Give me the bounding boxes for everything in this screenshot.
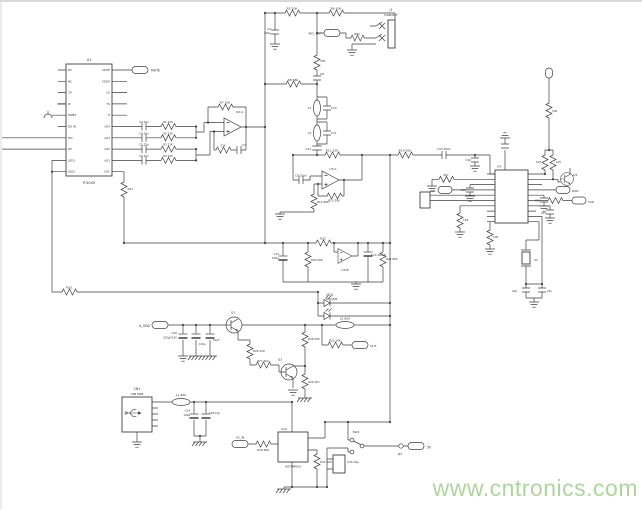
u1-pin-label: DM [68,136,73,140]
label-r4: R4 22K [163,154,173,158]
label-r28: R28 560 [308,337,320,341]
inductor-l4 [314,125,321,141]
usb-reg-section: CN1 USB MINI L1 600 C24 100μ C28 10μ 5V_… [122,387,432,493]
ground-icon [132,442,142,447]
label-r15: 22K [220,144,226,148]
label-r26: R26 220 [253,349,265,353]
capacitor-c11 [323,131,331,135]
resistor-r17 [542,153,548,172]
label-u12-part: LM78M05A [285,465,302,469]
label-c9: C9 100n [295,174,307,178]
resistor-r11 [323,152,342,158]
inductor-l1 [172,399,190,406]
schematic-canvas: U1 P-5049 MUTE R33 R21 PD NC CP IP HWBT … [0,0,642,509]
label-c14: C14 [305,147,311,151]
ground-icon [275,214,285,219]
label-r8: R8 680 [288,78,299,82]
u1-pin-label: NC [68,79,72,83]
label-c19: C19 [535,199,540,203]
u1-pin-label: DP [68,147,72,151]
u1-pin-label: LED1 [68,158,75,162]
top-section: C2 100μ R5 10K R6 10K 330 C8 R8 680 MIC_… [264,7,398,244]
capacitor-c16 [471,158,479,162]
label-q1: Q1 [231,311,235,315]
power-section: A_VDD L2 600 C25 220μF/16V 100μ 10μF Q1 … [139,311,390,403]
u1-pin-label: LED2 [68,170,75,174]
transistor-q1 [226,317,242,333]
net-flag-5v-in [232,441,248,448]
label-c28: C28 10μ [209,411,220,415]
switch-contact-1 [350,438,354,442]
label-r22: R22 [320,237,326,241]
u1-pin-label: HWBT [68,113,77,117]
label-r1: R1 22K [163,120,173,124]
label-u2a: U2:A [236,110,244,114]
u1-part: P-5049 [83,181,95,185]
label-c11: C11 [331,131,337,135]
label-r18: 1K5 [556,160,561,164]
label-c22: 22p [547,289,552,293]
transistor-q2 [281,364,297,380]
ground-icon [539,206,549,211]
label-u3a: U3:A [329,167,337,171]
ground-icon [455,232,465,237]
capacitor-c2 [271,30,279,34]
label-c24-val: 100μ [183,413,190,417]
capacitor-c15 [442,151,446,159]
ground-icon [545,218,555,223]
ground-icon [270,44,280,49]
label-r31: R31 560 [320,460,332,464]
u1-pin-label: AO1 [104,158,110,162]
u1-section: U1 P-5049 MUTE R33 R21 PD NC CP IP HWBT … [2,58,318,295]
capacitor-c20 [546,210,554,214]
capacitor-c21 [522,288,530,292]
ground-icon [288,390,298,395]
label-cn1: CN1 [134,387,141,391]
label-r29: R29 4K7 [308,380,320,384]
connector-cn1-body [122,397,152,432]
jumper-jp1 [399,444,403,448]
label-u4: U4 [497,165,501,169]
label-l4: L4 [308,131,312,135]
mic-component-body [420,192,430,208]
resistor-r2 [159,135,178,141]
net-flag-rxd [556,186,570,193]
led2-icon [324,309,332,320]
u3a-section: R11 10K R14 10K C15 100n C9 100n U3:A R1… [275,147,495,219]
label-c18: C18 [460,188,466,192]
inductor-l2 [336,322,354,329]
label-jp1: JP1 [397,452,403,456]
switch-contact-2 [360,444,364,448]
label-sw1: SW1 [353,430,360,434]
label-c15: C15 100n [437,147,451,151]
label-5v: 5V [427,446,432,450]
label-c5: C5 22n [139,143,149,147]
u1-pin-label: IP [68,102,71,106]
label-a-vdd: A_VDD [139,324,150,328]
schematic-page: U1 P-5049 MUTE R33 R21 PD NC CP IP HWBT … [0,0,642,509]
ground-icon [500,133,510,138]
opamp-u3b [338,249,352,264]
resistor-r1 [159,124,178,130]
label-c6: C6 22n [139,154,149,158]
resistor-r21 [121,180,127,199]
label-5v-in: 5V_IN [236,436,245,440]
label-c2-val: 100μ [264,31,271,35]
ground-icon [276,489,291,493]
resistor-r4 [159,157,178,163]
label-out: OUT [370,344,377,348]
transistor-q3 [561,173,574,186]
label-r24: R24 8K2 [386,257,398,261]
u1-pin-label: AO3 [104,136,110,140]
u1-pin-label: PD [68,68,72,72]
resistor-r5 [283,10,302,16]
ground-icon [178,356,188,361]
label-c30: C30 10μ [347,460,359,464]
resistor-r30 [254,441,273,447]
capacitor-c7 [237,146,241,154]
label-u12: U12 [281,427,287,431]
net-flag-5v [408,443,424,450]
capacitor-c24 [190,414,199,418]
label-c25: C25 [171,331,177,335]
watermark-text: www.cntronics.com [432,475,638,501]
u1-pin-label: CP [68,91,72,95]
label-r7: R7 10K [220,101,232,105]
label-r3: R3 22K [163,143,173,147]
net-flag-mute [132,67,148,74]
net-flag-vol [438,186,452,193]
label-l2: L2 600 [340,317,350,321]
label-c7: C7 [242,143,246,147]
capacitor-c8 [313,76,321,80]
resistor-r33 [60,289,79,295]
net-flag-mic-out [324,30,340,37]
label-r11: R11 10K [326,149,340,153]
ground-icon [347,50,357,55]
label-l1: L1 600 [176,393,186,397]
u1-pin-label: OSC [104,170,110,174]
u1-pin-label: TS [106,102,111,106]
label-c27-val: 10μF [213,338,220,342]
label-c10: C10 [331,106,337,110]
wires [137,402,408,489]
u1-pin-label: AO2 [104,147,110,151]
label-c25-val: 220μF/16V [163,336,177,340]
label-j1: J1 [389,8,393,12]
label-led-type: LED R/B [326,297,337,301]
ground-icon [470,166,480,171]
resistor-r19 [546,198,565,204]
u1-pin-label: MUTE [102,68,110,72]
resistor-r3 [159,146,178,152]
u1-pin-label: LD [106,91,110,95]
switch-lever [354,441,361,445]
label-r15b: 10K [552,109,558,113]
label-r2: R2 22K [163,131,173,135]
label-r9: 330 [320,59,326,63]
label-r14: R14 10K [399,149,413,153]
label-mute: MUTE [151,69,160,73]
switch-contact-3 [350,450,354,454]
capacitor-c22 [538,288,546,292]
u4-section: U4 4K7 C18 VOL 1K0 10K 1K5 1K5 10K Q3 RX… [420,68,595,307]
label-c12-val: 100μ [272,256,279,260]
label-r16: 4K7 [443,173,449,177]
label-l3: L3 [308,106,312,110]
label-r6: R6 10K [331,7,343,11]
u1-pin-label: VDDO [102,79,110,83]
label-rmic: 680 [354,32,360,36]
u1-ref: U1 [87,58,92,62]
label-c16: C16 [465,158,471,162]
ground-icon [297,398,312,402]
ground-icon [529,302,539,307]
u1-pin-label: TI [107,113,111,117]
label-q2: Q2 [278,358,282,362]
label-r33: R33 [66,286,72,290]
label-vol: VOL [430,189,436,193]
net-flag-a-vdd [152,322,168,329]
capacitor-c27 [206,334,215,338]
capacitor-c12 [279,256,288,260]
label-q3: Q3 [573,173,577,177]
opamp-u3a [322,171,339,189]
label-rl7: 1K0 [463,218,469,222]
label-rl10: 10K [493,235,499,239]
resistor-r16 [437,176,456,182]
label-r30: R30 480 [257,448,269,452]
regulator-u12-body [278,432,308,462]
label-r21: R21 [128,187,134,191]
label-j1-part: HANDSET [384,13,398,17]
resistor-r14 [396,152,415,158]
ground-icon [351,284,361,289]
label-r13: R13 20K [328,199,340,203]
label-r25: R25 10K [329,339,341,343]
resistor-r25 [326,342,345,348]
label-c8: C8 [320,72,324,76]
ground-icon [485,249,495,254]
label-c26-val: 100μ [199,342,206,346]
label-c21: 22p [512,289,517,293]
capacitor-c10 [323,106,331,110]
u4-ic-body [495,170,528,223]
capacitor-c19 [540,198,548,202]
label-r20: R20 20K [311,258,323,262]
label-txd: TXD [587,200,595,204]
label-rxd: RXD [572,189,579,193]
capacitor-c26 [192,334,201,338]
ground-icon [188,356,203,360]
label-c20: C20 [541,211,546,215]
wires [2,70,318,292]
capacitor-decouple [501,144,509,148]
ground-icon [202,356,217,360]
dac-opamp-section: C3 22n R1 22K C4 22n R2 22K C5 22n R3 22… [139,101,265,165]
resistor-r6 [327,10,346,16]
net-flag-txd [572,197,586,204]
label-cn1-part: USB MINI [131,392,144,396]
net-flag-out [352,342,368,349]
wires [280,155,495,214]
opamp-u2a [224,118,241,136]
ground-icon [192,442,207,446]
label-x1: X1 [534,258,538,262]
net-flag-vdd-top [546,68,553,78]
resistor-r22 [314,240,333,246]
label-c13: C13 100μF [371,253,387,257]
resistor-r7 [216,104,235,110]
capacitor-c14 [312,146,322,150]
u1-pin-label: AO4 [104,125,110,129]
wires [265,13,395,243]
label-r17: 1K5 [536,160,541,164]
label-r5: R5 10K [287,7,299,11]
label-u3b: U3:B [341,268,348,272]
inductor-l3 [314,100,321,116]
label-mic-out: MIC_OUT [309,32,323,36]
capacitor-c25 [179,334,188,338]
label-r27: R27 2K2 [257,359,269,363]
capacitor-c30-body [333,455,345,473]
label-c4: C4 22n [139,131,149,135]
u3b-section: R22 C12 100μ R20 20K U3:B C13 100μF R24 … [265,155,398,422]
jack-j1-body [388,20,395,48]
wires [168,325,390,398]
resistor-r15 [214,147,233,153]
u1-pin-label: DG IN [68,125,76,129]
label-c24: C24 [184,409,190,413]
label-c3: C3 22n [139,120,149,124]
crystal-x1-body [522,252,530,264]
